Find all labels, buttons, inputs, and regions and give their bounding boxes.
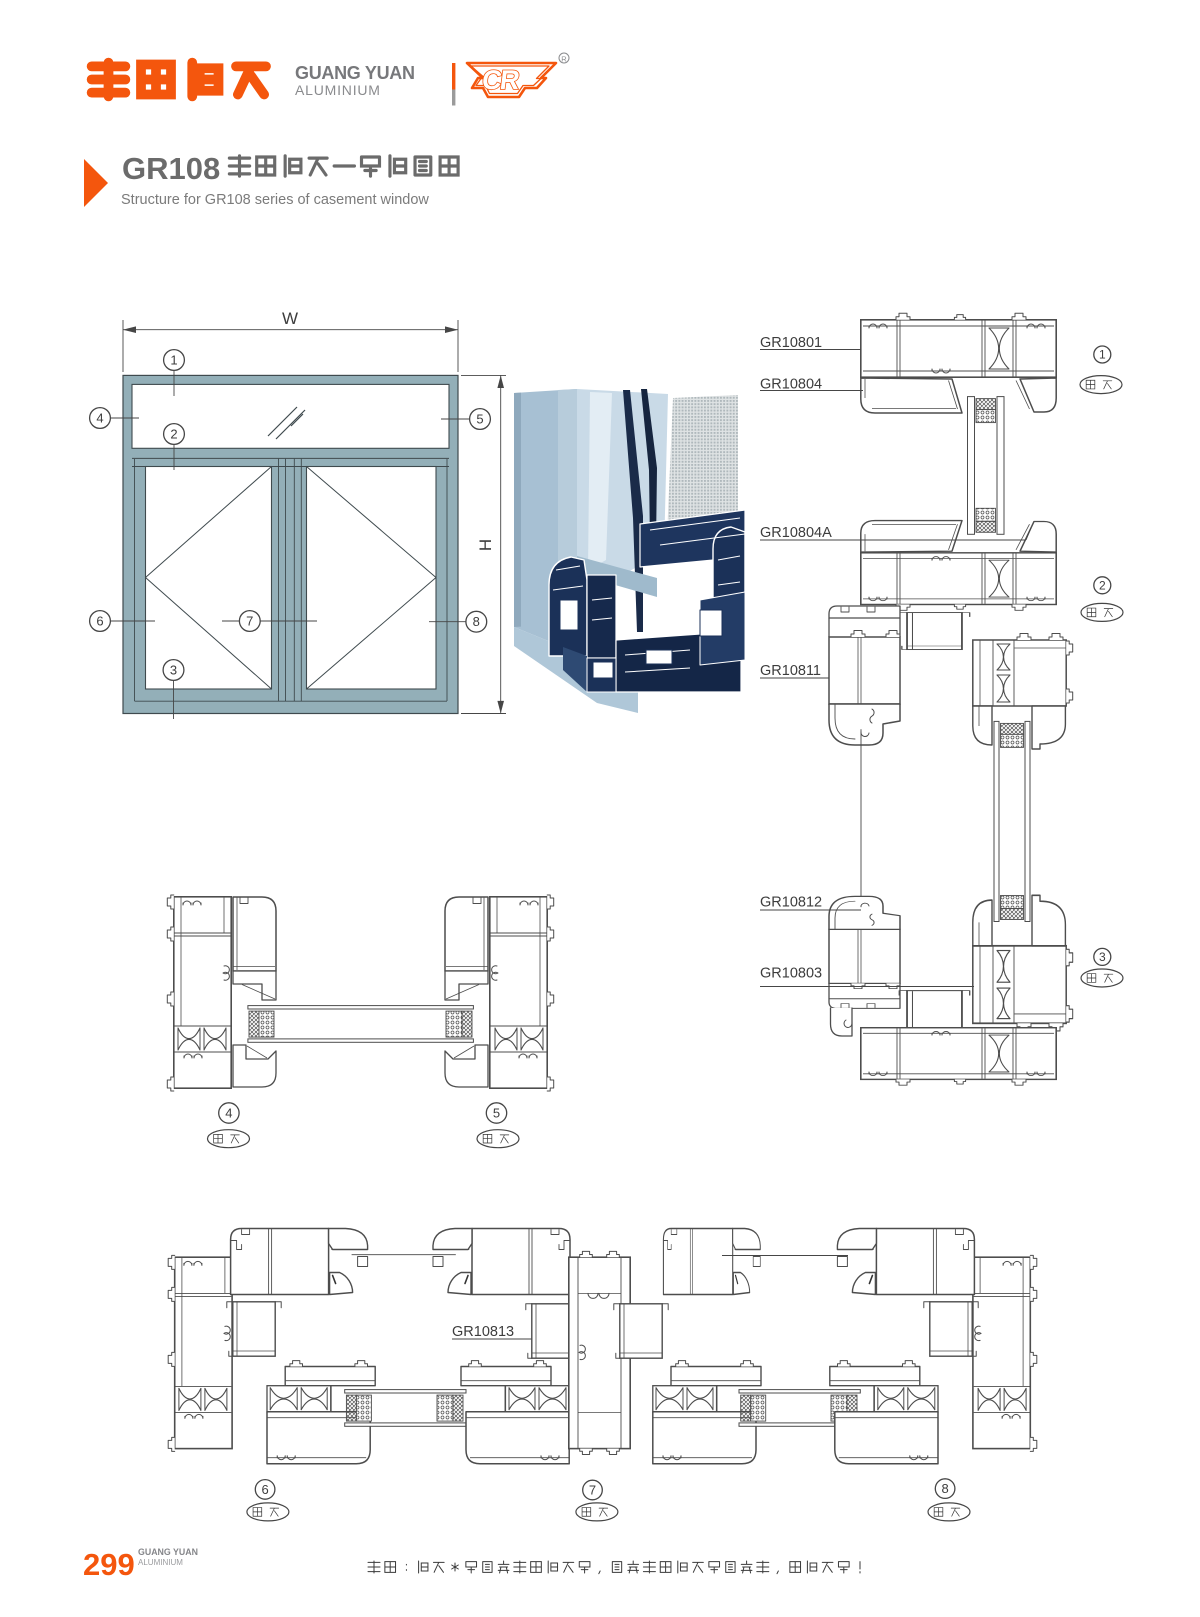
svg-text:Structure for GR108 series of: Structure for GR108 series of casement w… <box>121 192 429 208</box>
svg-text:6: 6 <box>261 1482 268 1497</box>
svg-text:GR10804A: GR10804A <box>760 525 832 541</box>
svg-text:4: 4 <box>225 1106 232 1121</box>
svg-text:3: 3 <box>170 663 177 678</box>
svg-text:GR10803: GR10803 <box>760 966 822 982</box>
svg-text:GUANG YUAN: GUANG YUAN <box>138 1547 198 1557</box>
svg-text:5: 5 <box>476 412 483 427</box>
svg-text:4: 4 <box>96 411 103 426</box>
svg-text:7: 7 <box>589 1483 596 1498</box>
svg-text:5: 5 <box>493 1106 500 1121</box>
svg-text:ALUMINIUM: ALUMINIUM <box>138 1558 183 1567</box>
svg-text:299: 299 <box>83 1547 135 1582</box>
svg-text:CR: CR <box>480 64 522 95</box>
svg-text:GR10801: GR10801 <box>760 335 822 351</box>
svg-text:GR10812: GR10812 <box>760 895 822 911</box>
svg-text:R: R <box>561 55 567 64</box>
svg-text:GR10811: GR10811 <box>760 663 821 679</box>
svg-text:8: 8 <box>941 1481 948 1496</box>
svg-text:2: 2 <box>1099 579 1106 593</box>
svg-text:3: 3 <box>1099 950 1106 964</box>
svg-text:GR10813: GR10813 <box>452 1324 514 1340</box>
svg-text:ALUMINIUM: ALUMINIUM <box>295 82 381 98</box>
svg-text:GR108: GR108 <box>122 151 220 186</box>
svg-text:1: 1 <box>170 353 177 368</box>
svg-text:7: 7 <box>246 614 253 629</box>
svg-text:H: H <box>476 539 495 551</box>
svg-text:GUANG YUAN: GUANG YUAN <box>295 63 415 83</box>
svg-text:W: W <box>282 309 298 328</box>
svg-text:6: 6 <box>96 614 103 629</box>
svg-text:2: 2 <box>170 427 177 442</box>
svg-text:1: 1 <box>1099 348 1106 362</box>
svg-text:8: 8 <box>473 614 480 629</box>
